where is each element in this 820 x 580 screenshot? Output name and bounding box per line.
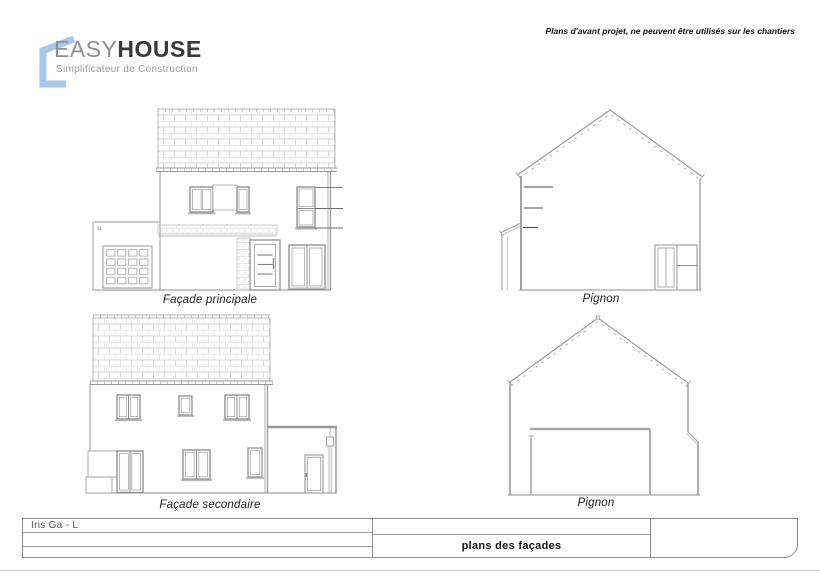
title-block-sheet-cell: plans des façades [373, 519, 651, 557]
facade-secondaire-label: Façade secondaire [135, 499, 285, 511]
pignon-bottom-label: Pignon [546, 497, 646, 509]
logo-tagline: Simplificateur de Construction [56, 64, 198, 75]
rear-structure [529, 429, 650, 495]
entry-canopy [158, 225, 277, 236]
door-side-unit [655, 245, 697, 290]
title-block-blank-cell [651, 519, 797, 557]
pignon-bottom-drawing [500, 312, 710, 504]
gable-roof [516, 110, 705, 181]
logo-text-house: HOUSE [117, 36, 201, 62]
walls [508, 382, 700, 495]
upper-floor-windows [188, 185, 343, 230]
level-marks [523, 187, 553, 228]
front-door [237, 238, 280, 290]
title-block-empty-row [23, 547, 372, 557]
logo-text-easy: EASY [54, 36, 117, 62]
title-block: Iris Ga - L plans des façades [22, 518, 798, 558]
page-edge-line [0, 570, 820, 571]
garage [93, 222, 160, 290]
roof [90, 315, 273, 385]
title-block-empty-row [23, 533, 372, 547]
facade-principale-label: Façade principale [130, 294, 290, 306]
french-door [288, 245, 327, 289]
title-block-strip [373, 519, 650, 535]
logo-wordmark: EASYHOUSE [54, 38, 202, 61]
project-reference: Iris Ga - L [23, 519, 372, 533]
roof [156, 109, 337, 172]
pignon-top-label: Pignon [551, 293, 651, 305]
gable-roof [508, 316, 691, 387]
disclaimer-text: Plans d'avant projet, ne peuvent être ut… [545, 26, 795, 36]
sheet-title: plans des façades [373, 535, 650, 557]
facade-principale-drawing [88, 103, 350, 303]
upper-floor-windows [115, 395, 251, 421]
rear-extension [268, 427, 338, 493]
pignon-top-drawing [495, 105, 710, 305]
garage-lean-to [500, 224, 521, 291]
ground-floor-openings [86, 448, 264, 493]
title-block-project-cell: Iris Ga - L [23, 519, 373, 557]
facade-secondaire-drawing [85, 310, 348, 510]
plan-sheet: { "header": { "disclaimer": "Plans d'ava… [0, 0, 820, 580]
